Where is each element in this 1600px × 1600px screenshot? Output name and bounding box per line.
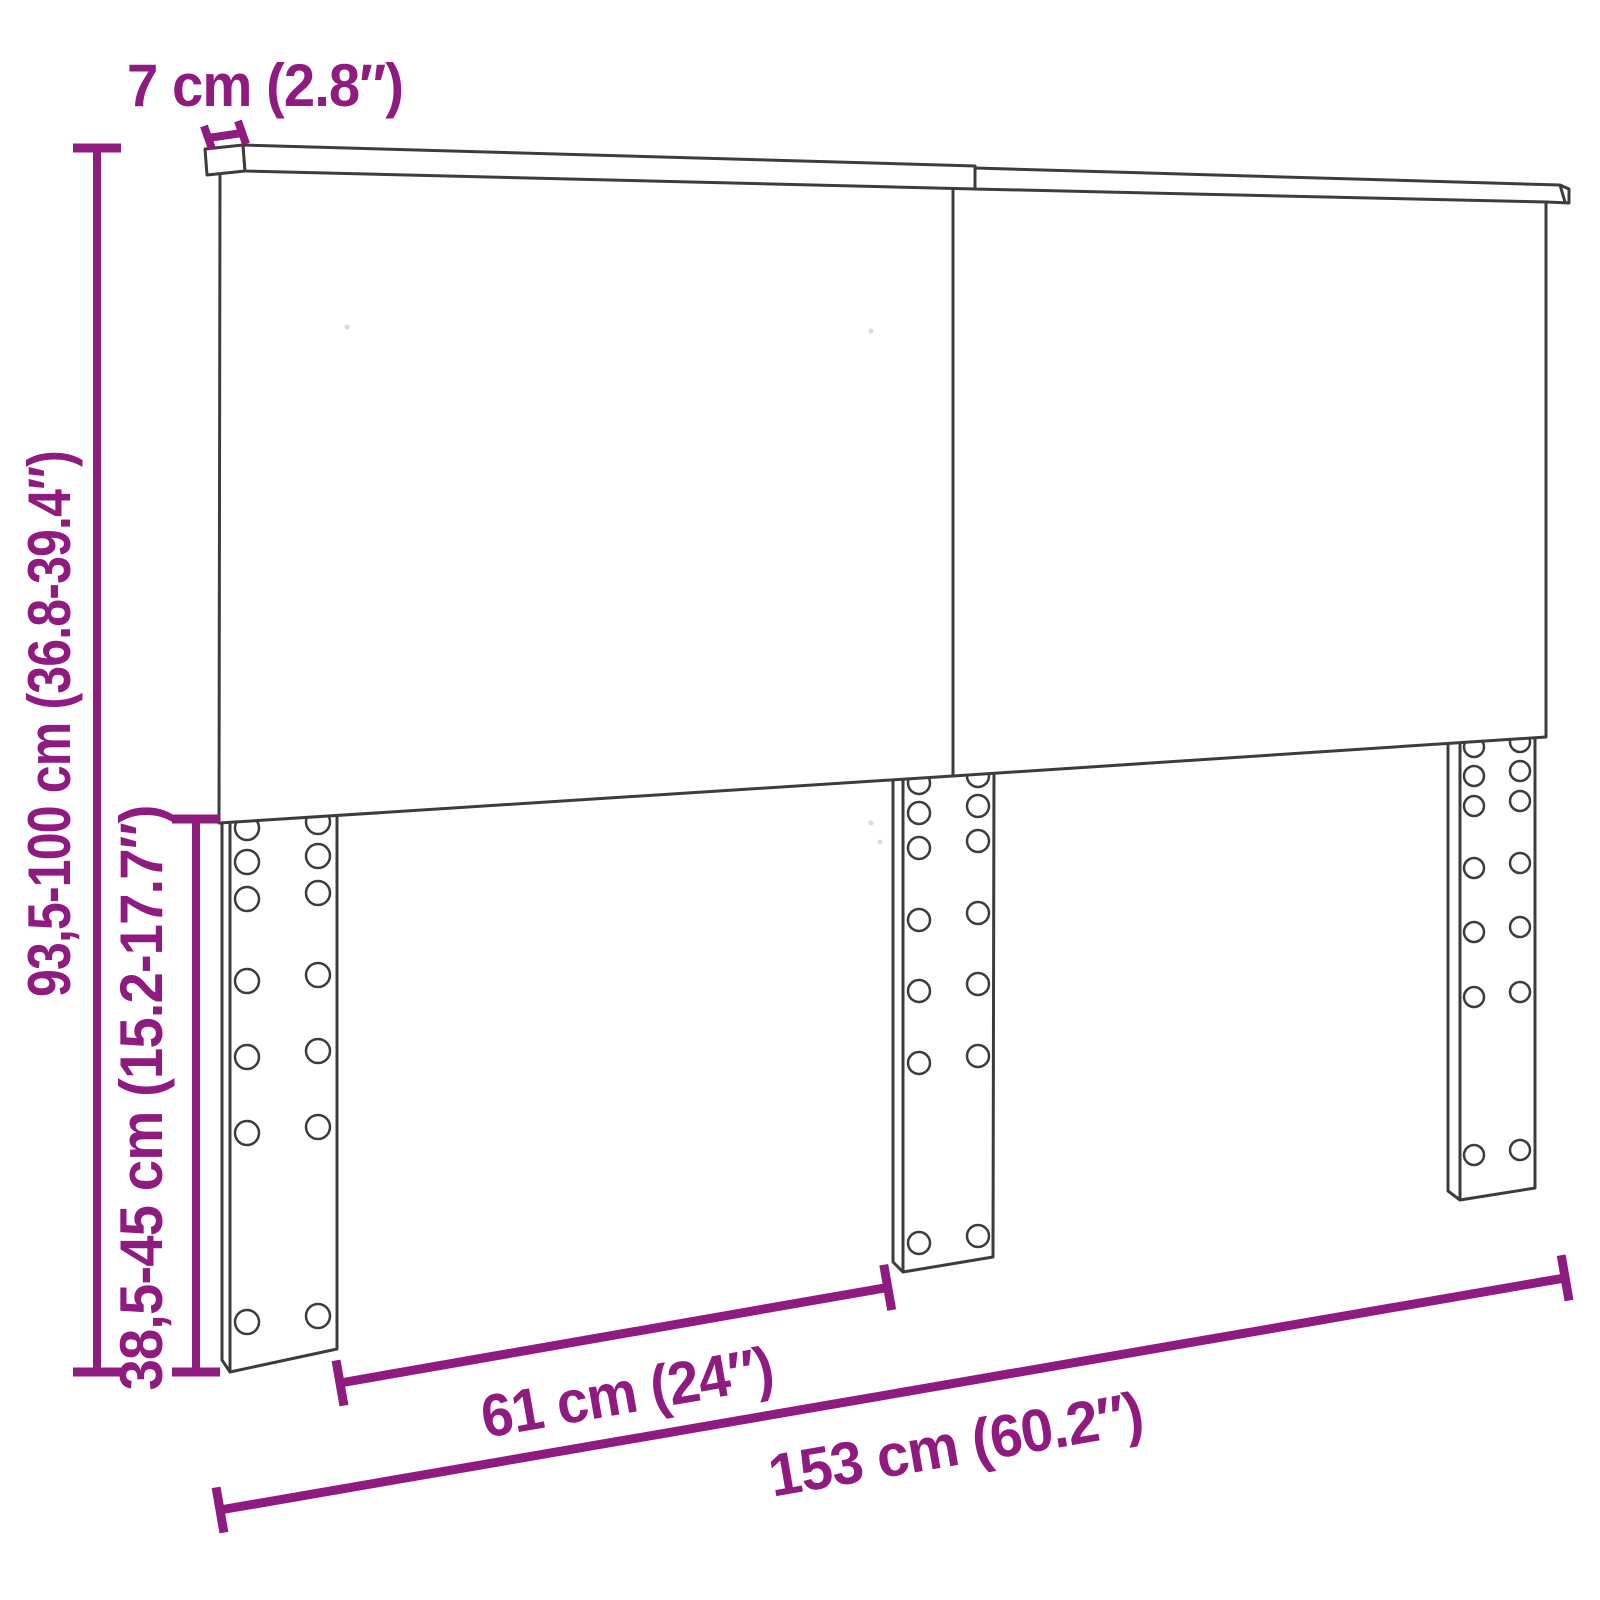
mounting-hole: [1510, 761, 1530, 781]
dimension-total-width-tick-right: [1561, 1255, 1569, 1300]
mounting-hole: [306, 844, 330, 868]
panel-speck: [345, 325, 350, 330]
dimension-depth-tick-left: [204, 126, 212, 149]
mounting-hole: [967, 830, 989, 852]
dimension-depth-line: [208, 133, 242, 138]
mounting-hole: [967, 902, 989, 924]
mounting-hole: [1510, 917, 1530, 937]
mounting-hole: [235, 1310, 259, 1334]
dimension-leg-height: 38,5-45 cm (15.2-17.7″): [108, 806, 220, 1391]
mounting-hole: [1510, 791, 1530, 811]
dimension-total-height: 93,5-100 cm (36.8-39.4″): [16, 148, 121, 1372]
mounting-hole: [235, 969, 259, 993]
mounting-hole: [235, 1045, 259, 1069]
mounting-hole: [1464, 987, 1484, 1007]
panel-speck: [869, 329, 874, 334]
headboard-dimension-diagram: 7 cm (2.8″) 93,5-100 cm (36.8-39.4″) 38,…: [0, 0, 1600, 1600]
mounting-hole: [1464, 766, 1484, 786]
left-panel: [219, 171, 953, 823]
panel-speck: [878, 840, 883, 845]
mounting-hole: [1464, 922, 1484, 942]
dimension-total-width: 153 cm (60.2″): [216, 1255, 1581, 1600]
mounting-hole: [908, 909, 930, 931]
dimension-total-width-tick-left: [216, 1487, 224, 1532]
mounting-hole: [967, 973, 989, 995]
dimension-depth-label: 7 cm (2.8″): [127, 52, 403, 119]
dimension-depth-tick-right: [238, 121, 246, 144]
mounting-hole: [1510, 1140, 1530, 1160]
right-leg: [1448, 732, 1535, 1200]
dimension-total-width-label: 153 cm (60.2″): [764, 1379, 1148, 1509]
mounting-hole: [908, 980, 930, 1002]
mounting-hole: [306, 1115, 330, 1139]
mounting-hole: [1510, 853, 1530, 873]
dimension-leg-spacing-tick-right: [884, 1265, 892, 1310]
mounting-hole: [967, 1225, 989, 1247]
mounting-hole: [908, 1232, 930, 1254]
left-leg: [222, 803, 337, 1372]
mounting-hole: [235, 1121, 259, 1145]
right-panel: [953, 188, 1546, 776]
mounting-hole: [908, 837, 930, 859]
mounting-hole: [306, 963, 330, 987]
dimension-leg-spacing-tick-left: [336, 1360, 344, 1405]
mounting-hole: [235, 887, 259, 911]
mounting-hole: [235, 850, 259, 874]
mounting-hole: [1464, 858, 1484, 878]
dimension-leg-height-label: 38,5-45 cm (15.2-17.7″): [108, 806, 175, 1391]
mounting-hole: [306, 881, 330, 905]
headboard-panels: [219, 171, 1546, 845]
panel-speck: [869, 821, 874, 826]
mounting-hole: [1464, 1145, 1484, 1165]
mounting-hole: [306, 1304, 330, 1328]
top-rail-left-end-cap: [205, 145, 245, 175]
dimension-depth: 7 cm (2.8″): [127, 52, 403, 149]
middle-leg: [893, 764, 994, 1272]
mounting-hole: [908, 802, 930, 824]
mounting-hole: [967, 1045, 989, 1067]
mounting-hole: [1510, 982, 1530, 1002]
dimension-total-height-label: 93,5-100 cm (36.8-39.4″): [16, 451, 83, 997]
mounting-hole: [967, 795, 989, 817]
mounting-hole: [1464, 796, 1484, 816]
diagram-canvas: 7 cm (2.8″) 93,5-100 cm (36.8-39.4″) 38,…: [0, 0, 1600, 1600]
right-leg-side-face: [1448, 741, 1460, 1200]
mounting-hole: [908, 1052, 930, 1074]
mounting-hole: [306, 1039, 330, 1063]
